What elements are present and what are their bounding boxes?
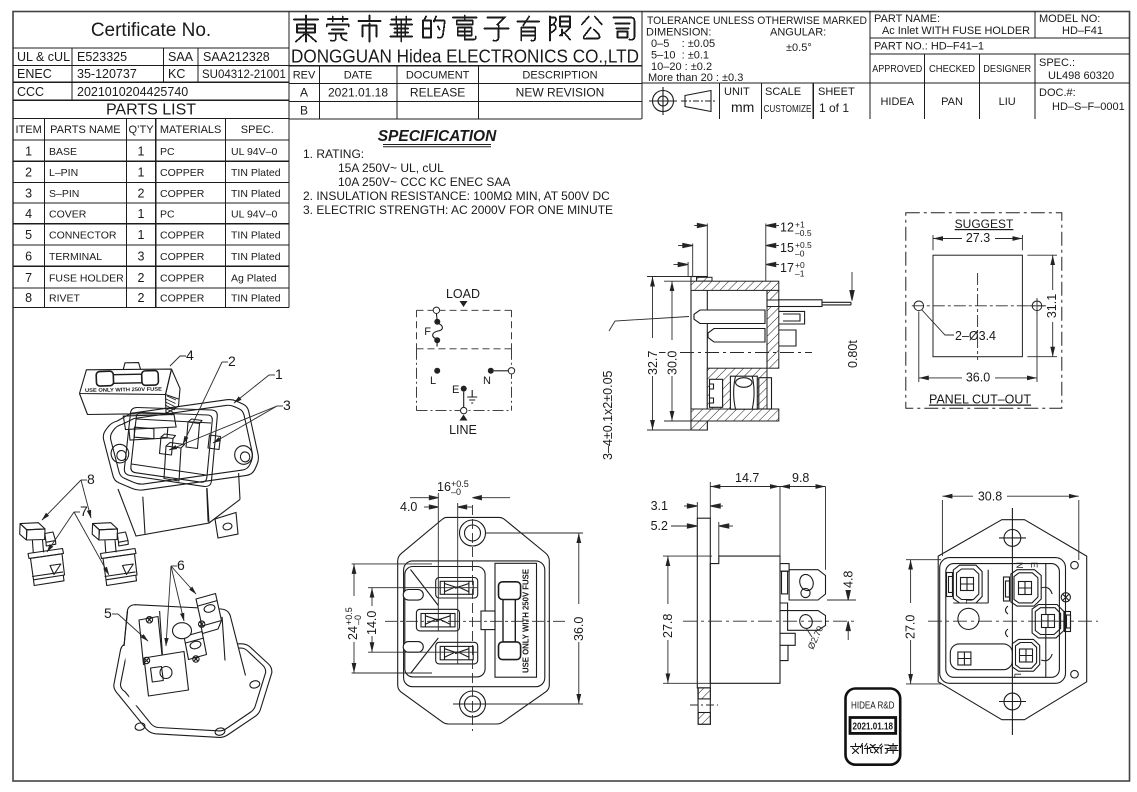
svg-text:2021.01.18: 2021.01.18 xyxy=(853,721,894,733)
svg-text:4.0: 4.0 xyxy=(400,500,417,514)
svg-text:±0.5°: ±0.5° xyxy=(786,42,812,54)
svg-text:15: 15 xyxy=(780,241,794,255)
svg-text:LINE: LINE xyxy=(449,423,477,437)
svg-text:2: 2 xyxy=(25,166,32,180)
svg-text:TIN Plated: TIN Plated xyxy=(231,251,281,263)
svg-text:–0: –0 xyxy=(795,249,805,259)
svg-text:FUSE HOLDER: FUSE HOLDER xyxy=(49,273,124,285)
svg-text:UL & cUL: UL & cUL xyxy=(17,50,70,64)
svg-text:14.7: 14.7 xyxy=(735,471,759,485)
svg-text:2021010204425740: 2021010204425740 xyxy=(77,85,188,99)
svg-text:HIDEA: HIDEA xyxy=(880,96,914,108)
svg-text:9.8: 9.8 xyxy=(792,471,809,485)
svg-text:27.0: 27.0 xyxy=(904,615,918,639)
svg-text:A: A xyxy=(300,86,308,100)
svg-text:ENEC: ENEC xyxy=(17,67,52,81)
svg-text:E: E xyxy=(452,384,459,396)
svg-text:3.1: 3.1 xyxy=(651,499,668,513)
svg-text:TOLERANCE UNLESS OTHERWISE MAR: TOLERANCE UNLESS OTHERWISE MARKED xyxy=(647,15,867,27)
svg-text:2. INSULATION RESISTANCE: 1: 2. INSULATION RESISTANCE: 100MΩ MIN, AT … xyxy=(303,189,610,203)
svg-text:Ac Inlet WITH FUSE HOLDER: Ac Inlet WITH FUSE HOLDER xyxy=(882,25,1030,37)
svg-text:PC: PC xyxy=(160,146,175,158)
svg-text:S–PIN: S–PIN xyxy=(49,188,79,200)
svg-text:1: 1 xyxy=(138,145,145,159)
svg-text:UL498 60320: UL498 60320 xyxy=(1048,70,1114,82)
svg-text:COPPER: COPPER xyxy=(160,251,205,263)
svg-text:1 of 1: 1 of 1 xyxy=(819,101,849,115)
svg-text:SHEET: SHEET xyxy=(818,86,855,98)
svg-text:BASE: BASE xyxy=(49,146,77,158)
svg-text:SAA212328: SAA212328 xyxy=(203,50,270,64)
svg-text:17: 17 xyxy=(780,261,794,275)
svg-text:12: 12 xyxy=(780,221,794,235)
svg-text:2: 2 xyxy=(138,291,145,305)
svg-text:DOCUMENT: DOCUMENT xyxy=(406,70,470,82)
svg-text:HD–F41: HD–F41 xyxy=(1062,25,1103,37)
svg-text:TIN Plated: TIN Plated xyxy=(231,293,281,305)
svg-text:7: 7 xyxy=(80,503,88,519)
svg-text:2: 2 xyxy=(138,187,145,201)
svg-text:USE ONLY WITH 250V FUSE: USE ONLY WITH 250V FUSE xyxy=(522,568,531,673)
svg-text:LIU: LIU xyxy=(999,96,1016,108)
svg-text:F: F xyxy=(424,326,431,338)
svg-text:2: 2 xyxy=(138,271,145,285)
svg-text:1: 1 xyxy=(138,228,145,242)
svg-text:–0: –0 xyxy=(353,615,363,625)
svg-text:7: 7 xyxy=(25,271,32,285)
svg-text:DIMENSION:: DIMENSION: xyxy=(646,27,711,39)
svg-text:COVER: COVER xyxy=(49,209,87,221)
svg-text:1: 1 xyxy=(138,166,145,180)
svg-text:5.2: 5.2 xyxy=(651,519,668,533)
svg-text:36.0: 36.0 xyxy=(572,617,586,641)
svg-text:3–4±0.1x2±0.05: 3–4±0.1x2±0.05 xyxy=(601,370,615,460)
svg-text:1: 1 xyxy=(138,207,145,221)
svg-text:4.8: 4.8 xyxy=(842,571,856,588)
svg-text:SPECIFICATION: SPECIFICATION xyxy=(378,128,497,145)
svg-text:TERMINAL: TERMINAL xyxy=(49,251,102,263)
svg-text:0.80t: 0.80t xyxy=(846,340,860,368)
svg-text:mm: mm xyxy=(731,99,754,115)
svg-text:SCALE: SCALE xyxy=(765,86,801,98)
svg-text:30.0: 30.0 xyxy=(666,351,680,375)
svg-text:PAN: PAN xyxy=(941,96,963,108)
svg-text:5–10 : ±0.1: 5–10 : ±0.1 xyxy=(651,50,709,62)
svg-text:MATERIALS: MATERIALS xyxy=(160,124,222,136)
svg-text:TIN Plated: TIN Plated xyxy=(231,188,281,200)
svg-text:27.3: 27.3 xyxy=(966,231,990,245)
svg-text:4: 4 xyxy=(25,207,32,221)
svg-text:2021.01.18: 2021.01.18 xyxy=(328,86,388,100)
svg-text:2: 2 xyxy=(228,353,236,369)
svg-text:L–PIN: L–PIN xyxy=(49,167,78,179)
svg-text:DOC.#:: DOC.#: xyxy=(1039,87,1076,99)
svg-text:HD–S–F–0001: HD–S–F–0001 xyxy=(1052,101,1125,113)
svg-text:36.0: 36.0 xyxy=(966,371,990,385)
svg-text:L: L xyxy=(964,599,974,604)
svg-text:HIDEA R&D: HIDEA R&D xyxy=(851,700,895,712)
svg-text:SPEC.: SPEC. xyxy=(241,124,274,136)
svg-text:REV: REV xyxy=(293,70,316,82)
svg-text:CUSTOMIZE: CUSTOMIZE xyxy=(764,104,812,115)
svg-text:MODEL NO:: MODEL NO: xyxy=(1039,13,1100,25)
svg-text:DONGGUAN Hidea ELECTRONICS CO.: DONGGUAN Hidea ELECTRONICS CO.,LTD xyxy=(291,47,639,67)
svg-text:1: 1 xyxy=(25,145,32,159)
svg-text:PART NO.: HD–F41–1: PART NO.: HD–F41–1 xyxy=(874,41,984,53)
svg-text:SPEC.:: SPEC.: xyxy=(1039,57,1075,69)
svg-text:COPPER: COPPER xyxy=(160,230,205,242)
svg-text:PARTS LIST: PARTS LIST xyxy=(106,102,196,119)
svg-text:3: 3 xyxy=(283,397,291,413)
svg-text:–0: –0 xyxy=(451,487,461,497)
svg-text:30.8: 30.8 xyxy=(978,490,1002,504)
svg-text:E523325: E523325 xyxy=(77,50,127,64)
svg-text:PANEL CUT–OUT: PANEL CUT–OUT xyxy=(929,393,1031,407)
svg-text:PART NAME:: PART NAME: xyxy=(874,13,940,25)
svg-text:L: L xyxy=(1013,673,1023,678)
svg-text:16: 16 xyxy=(437,480,451,494)
svg-text:15A 250V~ UL, cUL: 15A 250V~ UL, cUL xyxy=(338,161,444,175)
svg-text:SU04312-21001: SU04312-21001 xyxy=(202,69,286,81)
svg-text:–0.5: –0.5 xyxy=(795,228,812,238)
svg-text:PC: PC xyxy=(160,209,175,221)
svg-text:31.1: 31.1 xyxy=(1045,294,1059,318)
svg-text:ITEM: ITEM xyxy=(15,124,41,136)
svg-text:3. ELECTRIC STRENGTH: AC 2: 3. ELECTRIC STRENGTH: AC 2000V FOR ONE M… xyxy=(303,203,613,217)
svg-text:NEW REVISION: NEW REVISION xyxy=(516,86,605,100)
svg-text:B: B xyxy=(300,104,308,118)
svg-text:5: 5 xyxy=(25,228,32,242)
svg-text:APPROVED: APPROVED xyxy=(872,63,922,75)
svg-text:4: 4 xyxy=(186,347,194,363)
svg-text:SUGGEST: SUGGEST xyxy=(955,217,1014,231)
svg-text:32.7: 32.7 xyxy=(646,351,660,375)
svg-text:27.8: 27.8 xyxy=(661,614,675,638)
svg-text:COPPER: COPPER xyxy=(160,293,205,305)
svg-text:2–Ø3.4: 2–Ø3.4 xyxy=(955,329,996,343)
svg-text:1. RATING:: 1. RATING: xyxy=(303,147,364,161)
svg-text:DESCRIPTION: DESCRIPTION xyxy=(522,70,597,82)
svg-text:3: 3 xyxy=(138,250,145,264)
svg-text:UNIT: UNIT xyxy=(724,86,750,98)
svg-text:24: 24 xyxy=(346,626,360,640)
svg-text:1: 1 xyxy=(275,366,283,382)
svg-text:PARTS NAME: PARTS NAME xyxy=(50,124,121,136)
svg-text:L: L xyxy=(430,375,436,387)
svg-text:CHECKED: CHECKED xyxy=(929,63,975,75)
svg-text:ANGULAR:: ANGULAR: xyxy=(770,27,826,39)
svg-text:COPPER: COPPER xyxy=(160,167,205,179)
svg-text:5: 5 xyxy=(104,605,112,621)
svg-text:E: E xyxy=(1029,562,1039,568)
svg-text:KC: KC xyxy=(168,67,185,81)
svg-text:10A 250V~ CCC KC ENEC SAA: 10A 250V~ CCC KC ENEC SAA xyxy=(338,175,510,189)
svg-text:RIVET: RIVET xyxy=(49,293,81,305)
svg-text:LOAD: LOAD xyxy=(446,287,480,301)
svg-text:0–5 : ±0.05: 0–5 : ±0.05 xyxy=(651,38,715,50)
svg-text:RELEASE: RELEASE xyxy=(410,86,465,100)
svg-text:Certificate No.: Certificate No. xyxy=(91,20,211,41)
svg-text:TIN Plated: TIN Plated xyxy=(231,167,281,179)
svg-text:8: 8 xyxy=(87,471,95,487)
svg-text:DESIGNER: DESIGNER xyxy=(983,63,1031,75)
svg-text:–1: –1 xyxy=(795,269,805,279)
svg-text:CONNECTOR: CONNECTOR xyxy=(49,230,117,242)
svg-text:6: 6 xyxy=(177,557,185,573)
svg-text:COPPER: COPPER xyxy=(160,273,205,285)
svg-text:35-120737: 35-120737 xyxy=(77,67,137,81)
svg-text:6: 6 xyxy=(25,250,32,264)
svg-text:14.0: 14.0 xyxy=(365,611,379,635)
svg-text:SAA: SAA xyxy=(168,50,194,64)
svg-text:UL 94V–0: UL 94V–0 xyxy=(231,209,277,221)
svg-text:N: N xyxy=(483,375,491,387)
svg-text:TIN Plated: TIN Plated xyxy=(231,230,281,242)
svg-text:8: 8 xyxy=(25,291,32,305)
svg-text:More than 20 : ±0.3: More than 20 : ±0.3 xyxy=(648,72,743,84)
svg-text:CCC: CCC xyxy=(17,85,44,99)
svg-text:Ag Plated: Ag Plated xyxy=(231,273,277,285)
svg-text:UL 94V–0: UL 94V–0 xyxy=(231,146,277,158)
svg-text:Q’TY: Q’TY xyxy=(128,124,154,136)
svg-text:COPPER: COPPER xyxy=(160,188,205,200)
svg-text:DATE: DATE xyxy=(344,70,373,82)
svg-text:3: 3 xyxy=(25,187,32,201)
svg-text:N: N xyxy=(1015,562,1025,569)
svg-text:USE ONLY WITH 250V FUSE: USE ONLY WITH 250V FUSE xyxy=(85,387,163,394)
